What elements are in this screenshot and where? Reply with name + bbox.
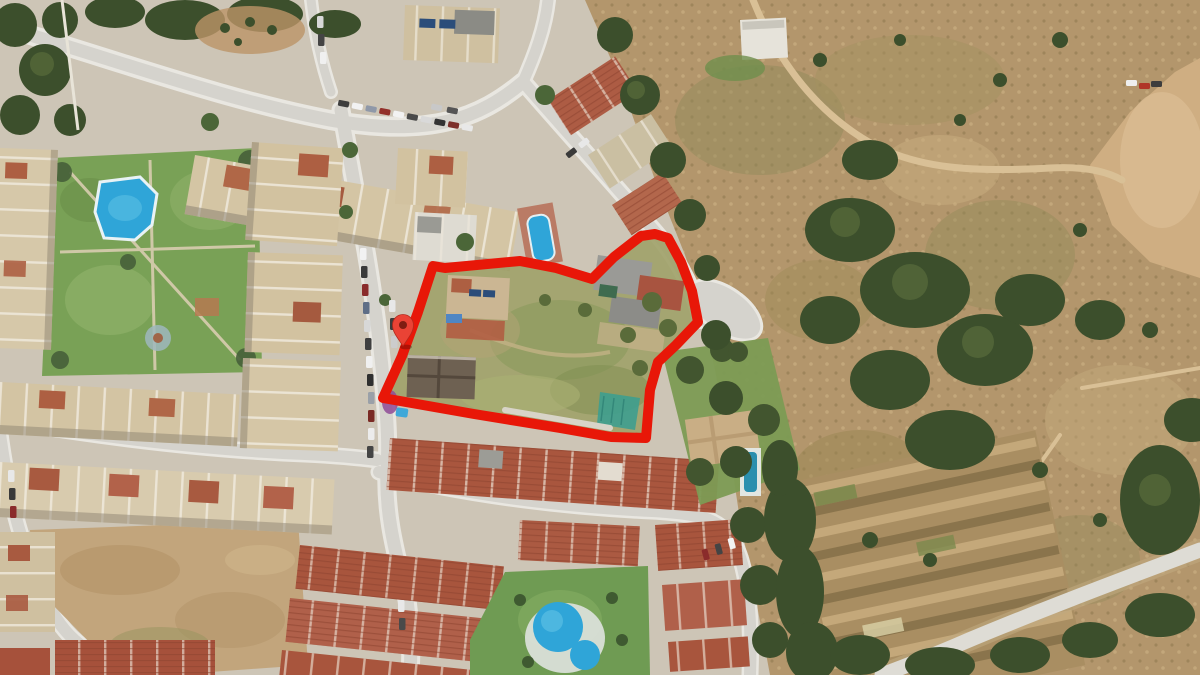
parcel-house-1 bbox=[446, 275, 510, 320]
pin-dot bbox=[399, 321, 407, 329]
tiny-pool bbox=[395, 407, 408, 418]
satellite-map[interactable] bbox=[0, 0, 1200, 675]
parcel-house-2 bbox=[407, 355, 476, 399]
map-canvas bbox=[0, 0, 1200, 675]
